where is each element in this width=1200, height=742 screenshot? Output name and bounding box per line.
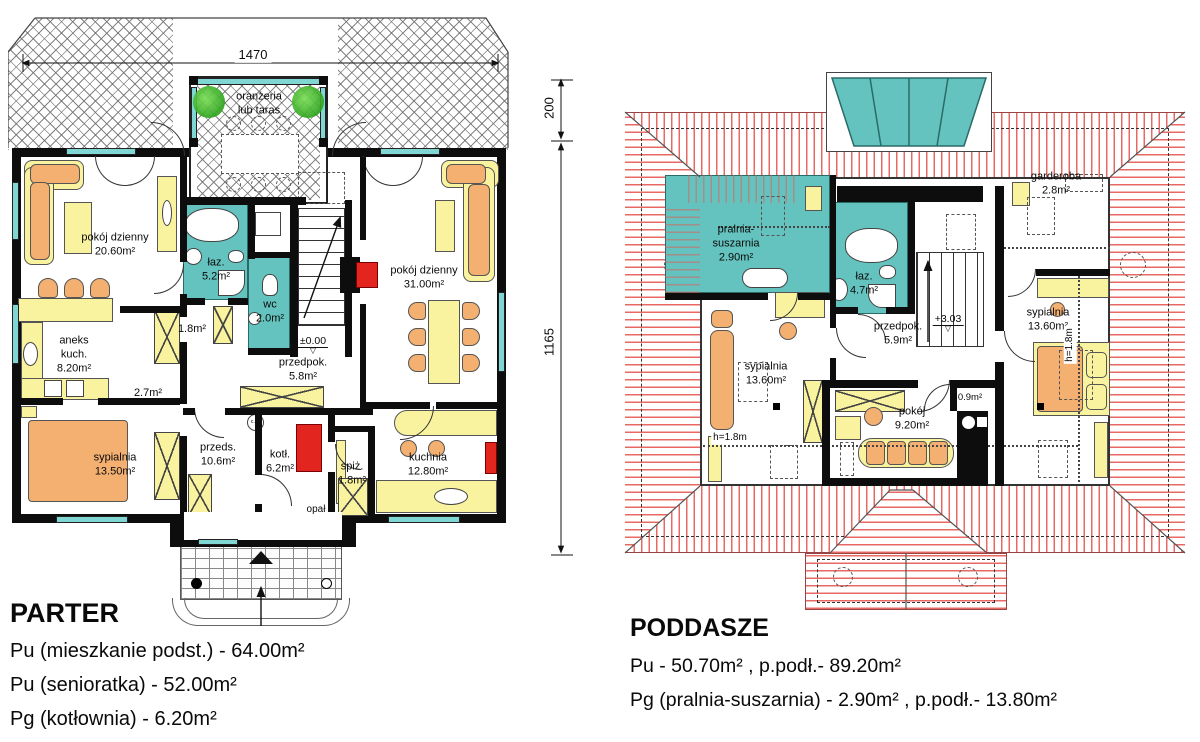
garden-chair [251,177,266,192]
kitchen-sink [66,380,84,397]
room-label-sypialnia: sypialnia 13.50m² [94,451,137,479]
room-label-przedpok: przedpok. 5.9m² [874,320,922,348]
wall [995,362,1004,486]
label-closet-b: 2.7m² [134,387,162,401]
wall [995,186,1004,331]
pralnia-roof-overlay [665,203,700,293]
wall [248,348,298,355]
wall [830,358,836,380]
window [498,292,505,372]
window [56,516,128,523]
corner-sofa [30,164,80,184]
wall [798,293,830,300]
roof-window-arc [1120,252,1146,278]
cooktop [44,380,62,397]
chair [462,328,480,346]
washbasin [185,248,202,265]
staircase [298,208,345,326]
room-label-kuchnia: kuchnia 12.80m² [408,451,448,479]
post [189,138,198,147]
kitchen-counter [21,378,109,400]
post [319,138,328,147]
chair [64,278,84,298]
room-label-laz: łaz. 4.7m² [850,270,878,298]
wall [248,205,255,259]
cabinet [1094,422,1108,478]
stairs-landing-dashed [946,214,976,250]
height-line [703,445,1078,447]
chair [462,302,480,320]
basin-oval [23,342,38,366]
wall [360,402,430,409]
wall [183,298,205,305]
hall-wardrobe-row [240,386,324,408]
wall [1036,269,1110,276]
entry-porch [180,545,342,600]
room-label-garderoba: garderoba 2.8m² [1031,170,1081,198]
coffee-table [435,200,455,252]
poddasze-legend-line: Pu - 50.70m² , p.podł.- 89.20m² [630,655,901,678]
garden-chair [276,116,291,131]
garden-chair [276,177,291,192]
chair [408,328,426,346]
wall [255,415,262,475]
room-label-pokoj1: pokój dzienny 20.60m² [81,231,148,259]
window [380,148,440,155]
wall [837,186,983,202]
wall [822,380,830,486]
wardrobe [154,310,180,364]
wall [290,205,298,357]
dining-table [428,300,460,384]
sofa-seat [711,310,733,328]
appliance-square [977,417,987,427]
dormer-ring [958,567,978,587]
section-mark [1037,403,1044,410]
wardrobe [154,432,180,500]
appliance-circle [962,416,975,429]
dim-label-1470: 1470 [235,47,272,63]
wall [248,252,290,258]
wall [908,202,915,314]
post [319,76,328,85]
wall [828,380,918,388]
wall [360,157,366,240]
washer-dashed [761,196,785,236]
label-h18-left: h=1.8m [711,432,749,445]
room-label-przedpok: przedpok. 5.8m² [279,356,327,384]
wall [225,408,373,415]
garden-chair [251,116,266,131]
parter-legend-line: Pu (senioratka) - 52.00m² [10,674,237,697]
garden-table-dashed [221,134,299,174]
level-marker: +3.03 ▽ [933,313,964,331]
toilet [262,274,278,296]
wall [665,293,768,300]
furniture-dashed [840,442,854,476]
dim-label-1165: 1165 [542,325,557,359]
oranzeria-window-top [191,78,326,85]
garden-chair [226,177,241,192]
dining-table [18,298,113,322]
poddasze-legend-line: Pg (pralnia-suszarnia) - 2.90m² , p.podł… [630,689,1057,712]
toilet [879,265,896,279]
fireplace-red [356,262,378,288]
plant [193,86,225,118]
room-label-wc: wc 2.0m² [256,298,284,326]
wall [183,197,306,205]
window [66,148,136,155]
wardrobe [803,380,823,443]
post [189,76,198,85]
chair [462,354,480,372]
parter-legend-line: Pu (mieszkanie podst.) - 64.00m² [10,640,305,663]
parter-legend-line: Pg (kotłownia) - 6.20m² [10,708,217,731]
parter-plan: c.w. oranżeria lub taras pokój dzienny [8,12,583,637]
height-line [996,247,1110,249]
porch-post-dot [191,578,202,589]
chair [90,278,110,298]
cabinet [805,186,822,211]
room-label-spiz: spiż. 1.8m² [338,460,366,488]
kitchen-sink [434,488,468,505]
floor-plan-sheet: c.w. oranżeria lub taras pokój dzienny [0,0,1200,742]
bathtub [845,228,898,263]
height-line [1078,276,1080,482]
wall [360,304,366,402]
wall [886,307,908,314]
window [12,304,19,364]
section-mark [773,403,780,410]
corner-sofa [446,164,486,184]
laundry-tub [742,268,788,288]
porch-step-inner [184,598,338,619]
corner-sofa [468,184,490,276]
room-label-oranzeria: oranżeria lub taras [236,90,282,118]
wardrobe [188,474,212,516]
dormer-ring [833,567,853,587]
parter-roof-left [8,18,173,150]
porch-post-ring [321,578,332,589]
room-label-kotl: kotł. 6.2m² [266,448,294,476]
wall [328,472,335,517]
chair [408,302,426,320]
corner-sofa [30,182,50,260]
bathtub [185,208,239,242]
chair [38,278,58,298]
dormer-glazing [832,78,986,146]
wall [830,307,858,314]
label-opal: opał [307,504,326,517]
level-marker: ±0.00 ▽ [298,335,328,353]
desk-chair [864,407,883,426]
wall [180,436,187,517]
sofa [710,330,734,430]
wall [183,408,195,415]
door-swing [151,122,185,156]
wall [436,402,497,409]
window [388,516,460,523]
wall [180,342,187,404]
bathroom-cabinet [255,212,281,236]
window [198,539,238,545]
wall [21,398,63,405]
room-label-sypialnia-left: sypialnia 13.60m² [745,360,788,388]
plant [292,86,324,118]
stove-red [485,442,497,474]
room-label-przeds: przeds. 10.6m² [200,441,236,469]
door-swing [332,122,366,156]
nightstand [21,406,37,418]
label-closet-09: 0.9m² [958,392,982,404]
wall [950,380,957,411]
parter-title: PARTER [10,598,119,629]
wall [830,175,836,314]
wall [828,478,988,486]
desk-chair [779,322,797,340]
wall [368,432,375,517]
poddasze-plan: pralnia- suszarnia 2.90m² łaz. 4.7m² gar… [618,62,1198,617]
garden-chair [226,116,241,131]
furniture-dashed [770,445,798,479]
poddasze-title: PODDASZE [630,614,769,643]
room-label-laz: łaz. 5.2m² [202,256,230,284]
room-label-pralnia: pralnia- suszarnia 2.90m² [712,223,759,264]
wall [228,298,248,305]
label-h18-right: h=1.8m [1064,326,1077,364]
hall-cabinet [213,306,233,344]
wardrobe-dashed [1027,197,1055,235]
room-label-pokoj2: pokój dzienny 31.00m² [390,264,457,292]
wall [180,157,187,262]
room-label-pokoj: pokój 9.20m² [895,405,929,433]
room-label-aneks: aneks kuch. 8.20m² [57,334,91,375]
chair [408,354,426,372]
toilet [228,250,244,263]
boiler-red [296,424,322,472]
label-closet-a: 1.8m² [178,323,206,337]
dresser [1037,278,1109,298]
dresser-handle [162,200,172,226]
desk [835,416,861,440]
window [12,182,19,240]
wall [830,314,836,328]
dim-label-200: 200 [542,94,557,122]
wall [120,306,180,313]
